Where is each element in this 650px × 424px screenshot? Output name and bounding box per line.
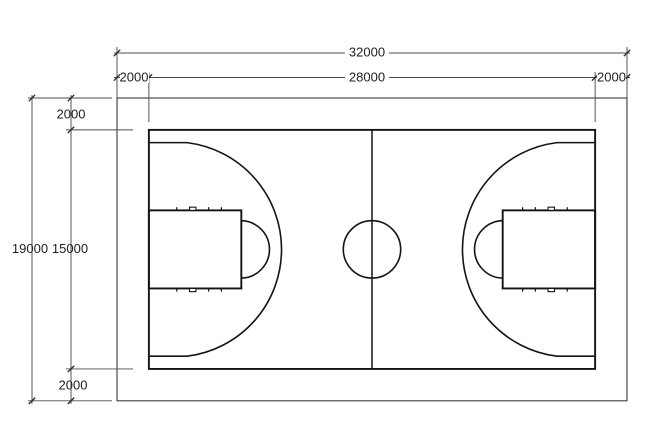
dim-label-overall-width: 32000: [349, 45, 385, 60]
dim-label-margin-bottom: 2000: [59, 378, 88, 393]
right-key-area: [503, 210, 595, 288]
dim-label-overall-height: 19000: [12, 241, 48, 256]
right-neutral-zone-block: [548, 288, 554, 291]
court-drawing-canvas: 32000 28000 2000 2000 19000 15000 2000 2…: [0, 0, 650, 424]
right-neutral-zone-block: [548, 207, 554, 210]
court-markings-layer: [117, 98, 627, 401]
dimension-labels: 32000 28000 2000 2000 19000 15000 2000 2…: [12, 45, 626, 393]
dim-label-court-height: 15000: [52, 241, 88, 256]
dimension-lines-layer: [28, 47, 630, 404]
drawing-page: 32000 28000 2000 2000 19000 15000 2000 2…: [0, 0, 650, 424]
dim-label-court-width: 28000: [349, 70, 385, 85]
right-free-throw-semicircle: [475, 221, 503, 278]
dim-label-margin-right: 2000: [597, 70, 626, 85]
left-key-area: [149, 210, 241, 288]
left-neutral-zone-block: [190, 207, 196, 210]
left-free-throw-semicircle: [241, 221, 269, 278]
left-neutral-zone-block: [190, 288, 196, 291]
dim-label-margin-top: 2000: [57, 107, 86, 122]
left-three-point-line: [149, 143, 282, 357]
right-three-point-line: [462, 143, 595, 357]
dim-label-margin-left: 2000: [120, 70, 149, 85]
